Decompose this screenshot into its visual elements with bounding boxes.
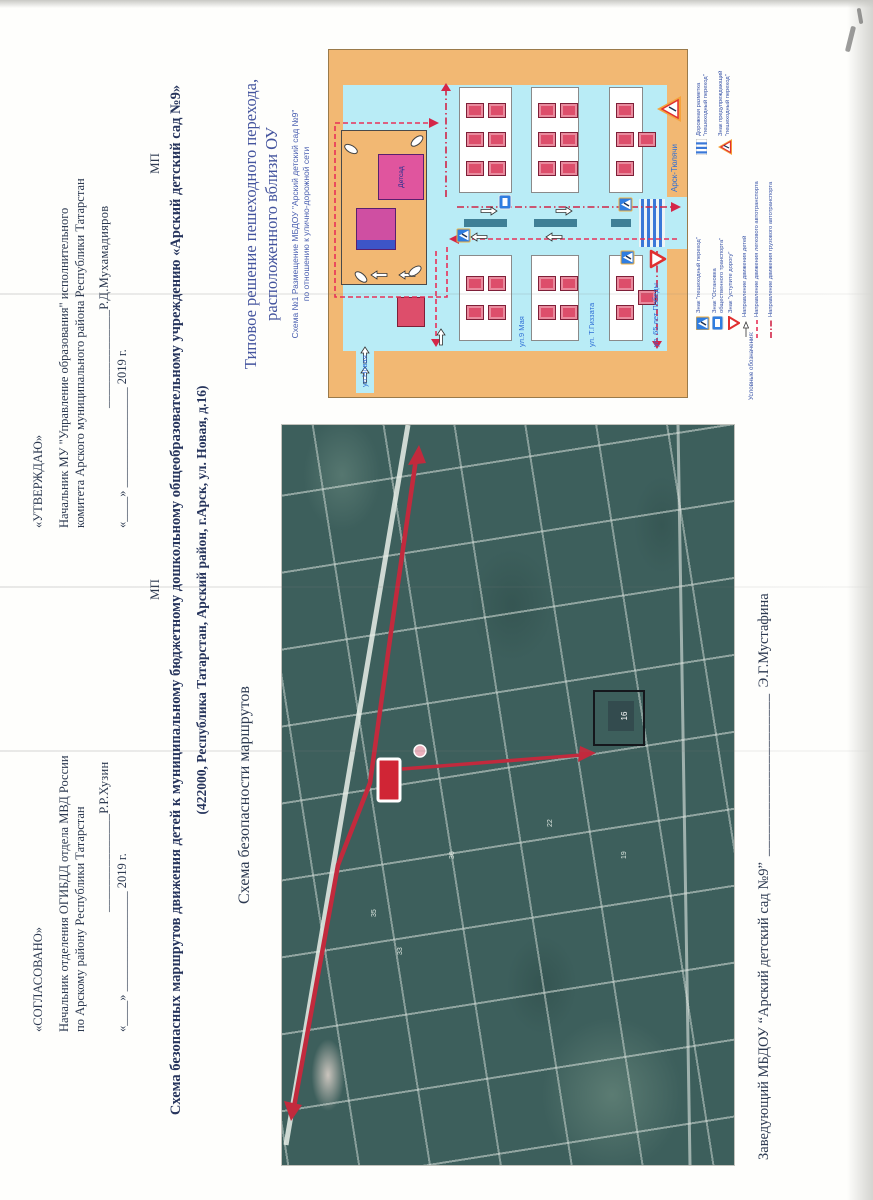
- agreed-org-line2: по Арскому району Республики Татарстан: [72, 602, 88, 1032]
- pedestrian-crossing-sign-icon: [696, 316, 710, 330]
- street-label: ул. Т.Гиззата: [587, 303, 596, 347]
- legend-item-label: Дорожная разметка "пешеходный переход": [696, 55, 709, 136]
- signature-underline: _____________________: [756, 693, 773, 856]
- road-median: [534, 219, 577, 227]
- traffic-overlay: [329, 50, 687, 397]
- secondary-road: [678, 425, 690, 1165]
- house-number: 19: [621, 851, 628, 859]
- agreed-org-line1: Начальник отделения ОГИБДД отдела МВД Ро…: [56, 602, 72, 1032]
- give-way-sign-icon: [651, 251, 665, 267]
- agreed-header: «СОГЛАСОВАНО»: [30, 602, 46, 1032]
- route-map-caption: Схема безопасности маршрутов: [236, 425, 254, 1165]
- fold-crease: [0, 586, 873, 588]
- bus-stop-sign-icon: [712, 316, 724, 330]
- diagram-title-line2: расположенного вблизи ОУ: [262, 46, 283, 402]
- street-label: ул.9 Мая: [517, 316, 526, 347]
- legend-item: Знак "пешеходный переход": [696, 226, 710, 330]
- route-arrowhead-branch: [578, 746, 596, 762]
- pedestrian-crossing-sign-icons: [457, 198, 634, 264]
- route-arrowhead-west: [284, 1101, 302, 1121]
- diagram-legend: Условные обозначения: Направление движен…: [690, 46, 782, 402]
- agreed-signature-line: _______________Р.Р.Хузин: [96, 602, 112, 1032]
- approved-stamp-mark: МП: [147, 153, 163, 174]
- legend-item: Дорожная разметка "пешеходный переход": [696, 55, 709, 155]
- legend-item-label: Направление движения детей: [742, 236, 749, 317]
- document-title-line1: Схема безопасных маршрутов движения дете…: [168, 20, 185, 1180]
- diagram-title-line1: Типовое решение пешеходного перехода,: [241, 46, 262, 402]
- crosswalk-road-marking-icon: [696, 139, 707, 155]
- give-way-sign-icon: [728, 316, 740, 330]
- children-direction-arrow-icon: [742, 320, 750, 338]
- director-signature-name: Э.Г.Мустафина: [756, 593, 773, 687]
- legend-item: Направление движения детей: [742, 178, 750, 338]
- director-signature-row: Заведующий МБДОУ “Арский детский сад №9”…: [756, 430, 773, 1160]
- road-median: [464, 219, 507, 227]
- street-label: ул.Новая: [360, 355, 369, 387]
- legend-item-label: Знак "Остановка общественного транспорта…: [712, 226, 725, 313]
- destination-house-number: 16: [620, 711, 629, 720]
- road-median: [611, 219, 631, 227]
- car-route-dashed-line-icon: [754, 320, 760, 338]
- landscape-document: «СОГЛАСОВАНО» Начальник отделения ОГИБДД…: [0, 0, 873, 1200]
- legend-item: Знак "уступите дорогу": [728, 226, 740, 330]
- legend-item-label: Знак "пешеходный переход": [696, 237, 703, 313]
- satellite-route-map: 16 33 35 36 22 19: [282, 425, 734, 1165]
- house-number: 22: [547, 819, 554, 827]
- pedestrian-warning-sign-icon: [718, 139, 732, 155]
- route-overlay: 16 33 35 36 22 19: [282, 425, 734, 1165]
- house-number: 36: [449, 851, 456, 859]
- crossing-scheme-panel: Детсад: [328, 49, 688, 398]
- legend-item-label: Направление движения грузового автотранс…: [768, 182, 775, 317]
- truck-route-dashdot-line-icon: [768, 320, 774, 338]
- document-title-line2: (422000, Республика Татарстан, Арский ра…: [194, 20, 210, 1180]
- legend-item: Направление движения грузового автотранс…: [768, 178, 775, 338]
- route-arrowhead-east: [408, 445, 426, 465]
- tree-symbols: [343, 134, 424, 284]
- house-number: 33: [397, 947, 404, 955]
- fold-crease: [0, 293, 873, 295]
- pedestrian-warning-sign-icon: [657, 96, 681, 122]
- legend-item-label: Направление движения легкового автотранс…: [754, 181, 761, 317]
- route-line-branch: [402, 755, 582, 769]
- legend-item: Направление движения легкового автотранс…: [754, 178, 761, 338]
- scan-edge-shadow: [847, 0, 873, 1200]
- legend-item-label: Знак "уступите дорогу": [728, 252, 735, 313]
- agreed-date-line: «____» ________________ 2019 г.: [114, 602, 130, 1032]
- legend-item: Знак "Остановка общественного транспорта…: [712, 226, 725, 330]
- diagram-subtitle-line2: по отношению к улично-дорожной сети: [301, 56, 312, 392]
- highway-label: Арск-Тюлячи: [670, 144, 679, 192]
- fold-crease: [0, 750, 873, 752]
- scan-edge-shadow: [0, 0, 873, 8]
- legend-item: Знак предупреждающий "пешеходный переход…: [718, 55, 732, 155]
- bus-stop-sign-icon: [499, 195, 511, 209]
- house-number: 35: [371, 909, 378, 917]
- director-signature-label: Заведующий МБДОУ “Арский детский сад №9”: [756, 862, 773, 1160]
- scanned-sheet: «СОГЛАСОВАНО» Начальник отделения ОГИБДД…: [0, 0, 873, 1200]
- diagram-title: Типовое решение пешеходного перехода, ра…: [241, 46, 282, 402]
- legend-item-label: Знак предупреждающий "пешеходный переход…: [718, 55, 731, 136]
- diagram-subtitle-line1: Схема №1 Размещение МБДОУ "Арский детски…: [290, 56, 301, 392]
- diagram-subtitle: Схема №1 Размещение МБДОУ "Арский детски…: [290, 56, 312, 392]
- approval-block-agreed: «СОГЛАСОВАНО» Начальник отделения ОГИБДД…: [30, 602, 130, 1032]
- agreed-stamp-mark: МП: [147, 579, 163, 600]
- car-route-dashed: [335, 123, 677, 343]
- kindergarten-marker: [378, 759, 400, 801]
